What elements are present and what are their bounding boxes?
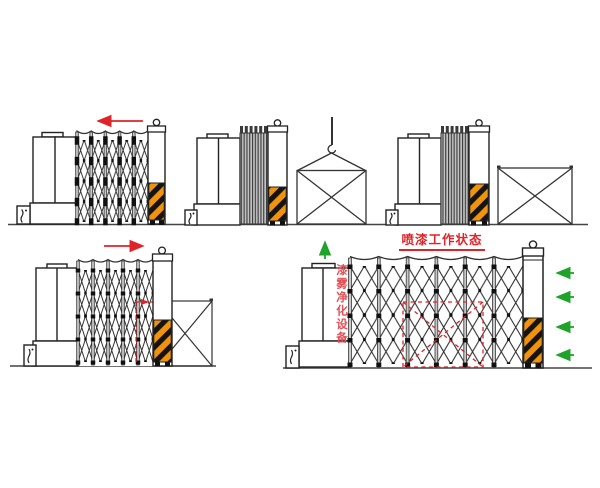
hazard-stripe-block — [149, 183, 164, 220]
wheel-icon — [270, 221, 275, 226]
hazard-stripe-block — [524, 318, 542, 363]
crate-cross-box — [497, 166, 573, 225]
figure-top-right-crate-placed — [386, 120, 573, 226]
wheel-icon — [165, 362, 170, 367]
green-arrow-left-icons — [558, 273, 574, 355]
canopy-wave — [78, 260, 153, 263]
crane-and-crate — [297, 117, 366, 224]
figure-top-middle-crane-lift — [185, 117, 366, 226]
end-column — [268, 120, 288, 226]
figure-bottom-right-working-state — [286, 241, 574, 368]
figure-top-left-retracting — [17, 119, 166, 225]
purifier-cabinet — [24, 264, 78, 366]
folding-booth-lattice — [349, 257, 523, 368]
pump-box-icon — [286, 346, 299, 368]
scissor-lattice — [78, 270, 153, 362]
wheel-icon — [482, 221, 487, 226]
purifier-cabinet — [386, 134, 441, 225]
crane-hook-icon — [328, 145, 335, 153]
wheel-icon — [155, 362, 160, 367]
figure-bottom-left-extending — [24, 246, 213, 366]
hazard-stripe-block — [154, 320, 171, 362]
end-column — [523, 241, 544, 368]
pump-box-icon — [24, 345, 36, 366]
wheel-icon — [536, 363, 542, 368]
wheel-icon — [471, 221, 476, 226]
end-column — [153, 247, 173, 366]
wheel-icon — [280, 221, 285, 226]
folding-booth-lattice — [76, 131, 148, 223]
end-column — [148, 119, 166, 225]
hazard-stripe-block — [269, 187, 286, 221]
spray-booth-diagram — [0, 0, 600, 488]
crate-tab — [570, 166, 574, 169]
lift-ring-icon — [529, 241, 536, 248]
sling-line — [298, 153, 332, 171]
wheel-icon — [525, 363, 531, 368]
sling-line — [332, 153, 366, 171]
hazard-stripe-block — [470, 184, 488, 221]
working-state-title: 喷漆工作状态 — [399, 233, 485, 251]
lift-ring-icon — [476, 120, 482, 126]
scissor-lattice — [77, 140, 148, 222]
lift-ring-icon — [274, 120, 280, 126]
collapsed-pleats — [441, 130, 469, 225]
pump-box-icon — [17, 206, 30, 224]
end-column — [469, 120, 490, 226]
purifier-cabinet — [185, 134, 240, 225]
wheel-icon — [150, 221, 155, 226]
canopy-wave — [77, 131, 148, 134]
crate-tab — [497, 166, 501, 169]
crate-tab — [210, 299, 214, 302]
collapsed-pleats — [240, 130, 268, 225]
purifier-unit-vertical-label: 漆雾净化设备 — [334, 264, 348, 350]
purifier-cabinet — [17, 133, 77, 225]
lift-ring-icon — [159, 247, 166, 254]
folding-booth-lattice — [77, 260, 153, 366]
crate-cross-box — [297, 171, 366, 225]
diagram-canvas: 喷漆工作状态 漆雾净化设备 — [0, 0, 600, 488]
lift-ring-icon — [153, 119, 159, 125]
wheel-icon — [159, 221, 164, 226]
